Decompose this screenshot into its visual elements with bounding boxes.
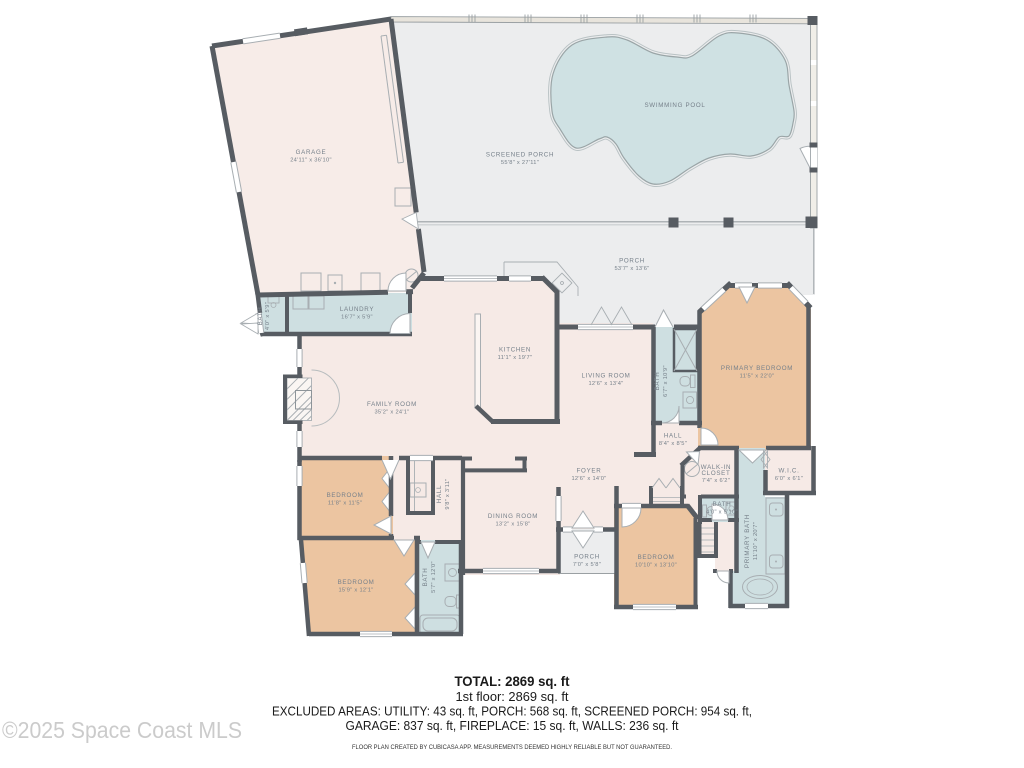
svg-text:W.I.C.: W.I.C. (778, 468, 799, 475)
svg-text:11'1" x 19'7": 11'1" x 19'7" (498, 355, 533, 361)
svg-text:BATH: BATH (257, 307, 264, 326)
svg-text:TOTAL: 2869 sq. ft: TOTAL: 2869 sq. ft (455, 674, 571, 689)
svg-text:LIVING ROOM: LIVING ROOM (582, 373, 631, 380)
svg-text:GARAGE: 837 sq. ft, FIREPLACE:: GARAGE: 837 sq. ft, FIREPLACE: 15 sq. ft… (346, 718, 679, 733)
svg-text:53'7" x 13'6": 53'7" x 13'6" (614, 266, 649, 272)
svg-text:7'0" x 5'8": 7'0" x 5'8" (573, 562, 601, 568)
svg-text:FLOOR PLAN CREATED BY CUBICASA: FLOOR PLAN CREATED BY CUBICASA APP. MEAS… (352, 744, 672, 751)
svg-text:BATH: BATH (422, 568, 429, 587)
svg-text:CLOSET: CLOSET (702, 470, 731, 477)
svg-text:HALL: HALL (436, 485, 443, 503)
svg-text:BATH: BATH (713, 501, 732, 508)
svg-text:KITCHEN: KITCHEN (499, 347, 531, 354)
svg-text:HALL: HALL (664, 433, 682, 440)
svg-text:PORCH: PORCH (619, 258, 645, 265)
svg-text:SCREENED PORCH: SCREENED PORCH (486, 152, 554, 159)
svg-text:24'11" x 36'10": 24'11" x 36'10" (290, 158, 332, 164)
svg-text:7'4" x 6'2": 7'4" x 6'2" (702, 478, 730, 484)
svg-text:BATH: BATH (654, 372, 661, 391)
svg-text:PRIMARY BATH: PRIMARY BATH (744, 514, 751, 568)
svg-text:6'7" x 10'9": 6'7" x 10'9" (663, 365, 669, 397)
svg-text:LAUNDRY: LAUNDRY (340, 306, 374, 313)
svg-text:12'6" x 13'4": 12'6" x 13'4" (588, 381, 623, 387)
svg-text:12'6" x 14'0": 12'6" x 14'0" (571, 476, 606, 482)
svg-text:4'0" x 5'9": 4'0" x 5'9" (265, 302, 271, 330)
svg-text:PORCH: PORCH (574, 554, 600, 561)
svg-text:5'7" x 12'0": 5'7" x 12'0" (431, 561, 437, 593)
svg-text:GARAGE: GARAGE (296, 149, 327, 156)
svg-text:55'8" x 27'11": 55'8" x 27'11" (501, 160, 539, 166)
svg-text:EXCLUDED AREAS: UTILITY: 43 sq: EXCLUDED AREAS: UTILITY: 43 sq. ft, PORC… (272, 704, 752, 719)
svg-text:©2025 Space Coast MLS: ©2025 Space Coast MLS (2, 717, 242, 743)
svg-text:16'7" x 5'9": 16'7" x 5'9" (341, 315, 373, 321)
svg-text:PRIMARY BEDROOM: PRIMARY BEDROOM (721, 365, 793, 372)
svg-text:10'10" x 13'10": 10'10" x 13'10" (635, 563, 677, 569)
svg-text:11'5" x 22'0": 11'5" x 22'0" (740, 374, 775, 380)
svg-text:15'9" x 12'1": 15'9" x 12'1" (338, 588, 373, 594)
svg-text:BEDROOM: BEDROOM (327, 492, 364, 499)
svg-text:FAMILY ROOM: FAMILY ROOM (367, 401, 417, 408)
svg-text:13'2" x 15'8": 13'2" x 15'8" (495, 522, 530, 528)
svg-text:DINING ROOM: DINING ROOM (488, 513, 538, 520)
svg-text:11'8" x 11'5": 11'8" x 11'5" (328, 501, 362, 507)
svg-text:6'0" x 6'1": 6'0" x 6'1" (775, 476, 803, 482)
svg-text:11'10" x 20'7": 11'10" x 20'7" (753, 522, 759, 560)
svg-text:1st floor: 2869 sq. ft: 1st floor: 2869 sq. ft (456, 689, 569, 704)
svg-text:SWIMMING POOL: SWIMMING POOL (644, 102, 705, 109)
svg-text:BEDROOM: BEDROOM (638, 554, 675, 561)
svg-text:BEDROOM: BEDROOM (338, 579, 375, 586)
svg-text:4'0" x 5'10": 4'0" x 5'10" (706, 510, 738, 516)
svg-text:9'8" x 3'11": 9'8" x 3'11" (445, 478, 451, 509)
svg-text:FOYER: FOYER (577, 468, 602, 475)
svg-text:8'4" x 8'5": 8'4" x 8'5" (659, 441, 687, 447)
svg-text:35'2" x 24'1": 35'2" x 24'1" (374, 410, 409, 416)
